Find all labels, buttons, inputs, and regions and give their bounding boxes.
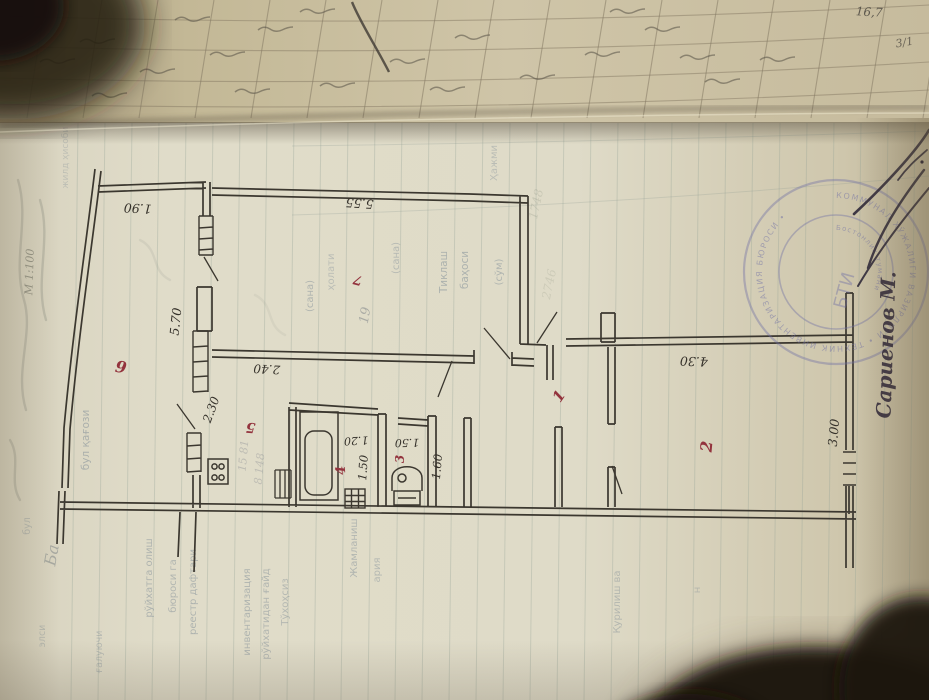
ledger-column-text: (сана) [391,242,402,274]
dimension-label: 1.20 [344,433,369,447]
year-note: 19 [357,306,375,325]
ledger-column-text: Ҳажми [489,145,500,181]
ledger-column-text: рўйхатга олиш [143,538,155,617]
folded-page: 16,7 3/1 [0,0,929,144]
dimension-label: 3.00 [825,418,842,447]
floor-plan-photo-svg: бул қағози(сана)(сана)Тиклашбаҳоси(сўм)Ҳ… [0,0,929,700]
room-number: 5 [245,419,256,436]
room-number: 3 [393,455,407,463]
stray-number: 15 81 [236,439,252,472]
notebook-photo: бул қағози(сана)(сана)Тиклашбаҳоси(сўм)Ҳ… [0,0,929,700]
ledger-column-text: баҳоси [459,251,471,289]
crease-shadow [0,122,929,144]
dimension-label: 1.90 [123,200,152,216]
ledger-column-text: Тиклаш [438,251,450,294]
folded-page-note: 16,7 [856,4,884,19]
dimension-label: 5.70 [167,307,185,336]
dimension-label: 1.50 [355,454,371,481]
ledger-column-text: ҳолати [326,254,337,291]
ledger-column-text: бюроси га [168,559,179,613]
left-page-shade [0,118,60,700]
ledger-column-text: бул қағози [80,410,92,471]
dimension-label: 5.55 [345,195,374,212]
room-number: 2 [696,440,716,454]
ledger-column-text: Жамланиш [349,518,360,577]
ledger-column-text: н [692,587,703,594]
ledger-column-text: Тўхоҳсиз [279,578,291,626]
dimension-label: 2.40 [253,361,282,376]
stray-number: 8 148 [252,452,268,485]
ledger-column-text: Қурилиш ва [612,570,623,633]
ledger-column-text: (сўм) [493,259,505,286]
dimension-label: 4.30 [680,354,709,370]
ledger-column-text: ария [372,558,383,583]
room-number: 4 [334,465,350,475]
ledger-column-text: (сана) [305,280,316,312]
dimension-label: 1.50 [395,436,420,449]
dimension-label: 1.60 [429,453,445,480]
